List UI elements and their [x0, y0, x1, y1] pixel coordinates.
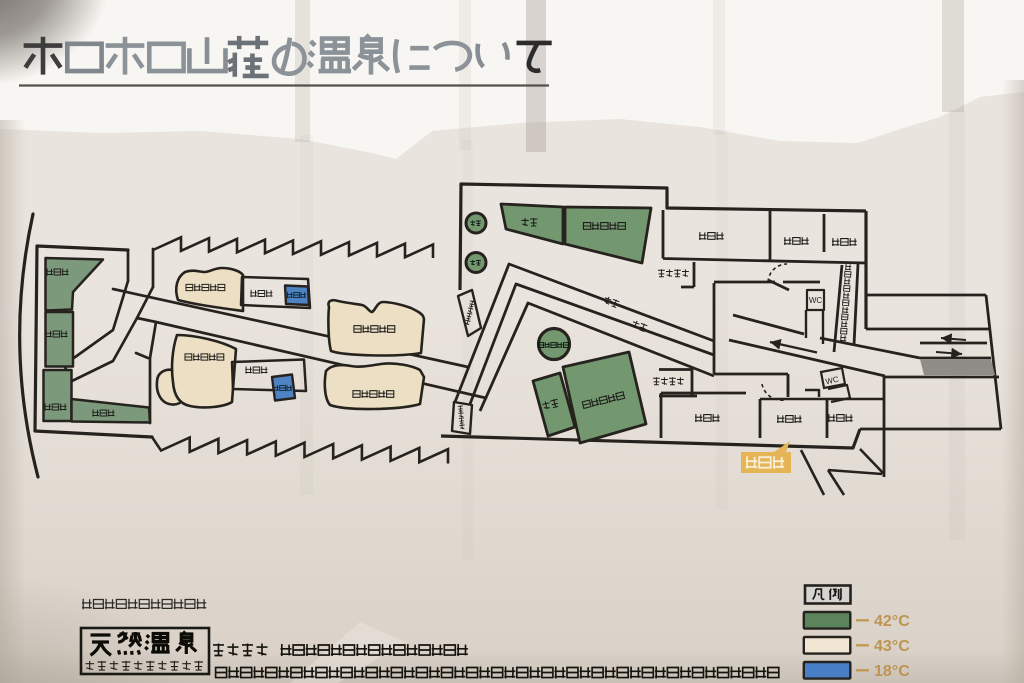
svg-text:WC: WC [809, 296, 823, 305]
svg-text:43°C: 43°C [874, 638, 910, 655]
svg-text:18°C: 18°C [874, 663, 910, 680]
svg-text:42°C: 42°C [874, 613, 910, 630]
